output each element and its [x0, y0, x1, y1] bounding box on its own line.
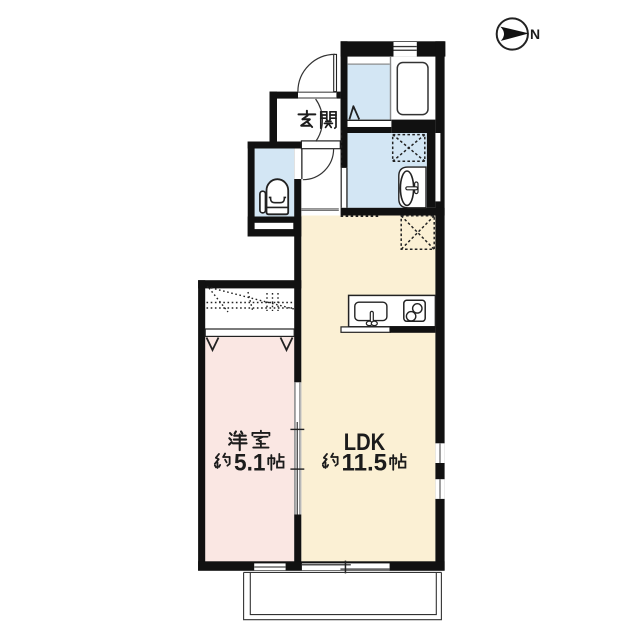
svg-text:5.1: 5.1: [234, 449, 266, 476]
svg-text:11.5: 11.5: [342, 449, 388, 476]
svg-text:N: N: [530, 26, 540, 42]
